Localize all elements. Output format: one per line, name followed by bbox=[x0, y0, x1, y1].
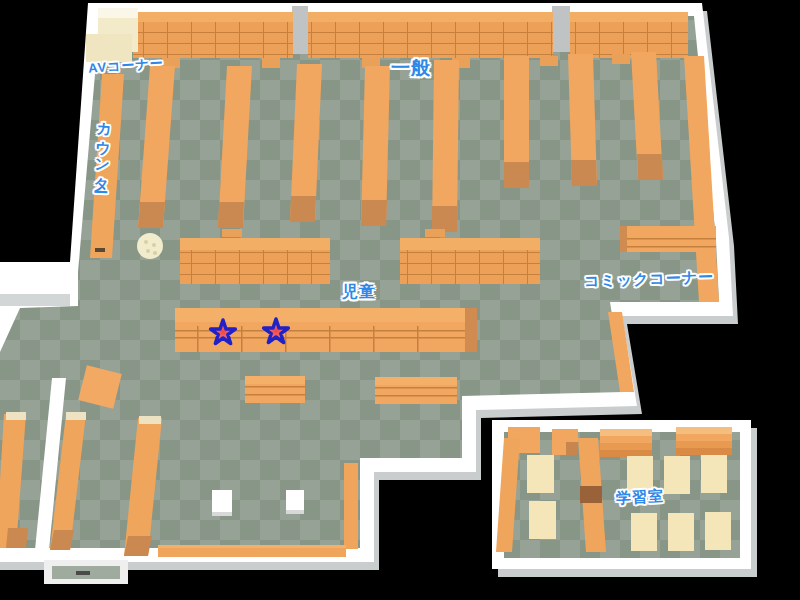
area-label-children: 児童 bbox=[342, 284, 376, 300]
floor-plan-canvas bbox=[0, 0, 800, 600]
entrance-gate[interactable] bbox=[44, 560, 128, 584]
library-floor-map: AVコーナー 一般 カウンター 児童 コミックコーナー 学習室 bbox=[0, 0, 800, 600]
entrance-wall-front bbox=[0, 294, 70, 306]
area-label-comic-corner: コミックコーナー bbox=[584, 269, 715, 289]
area-label-counter: カウンター bbox=[94, 112, 113, 186]
area-label-general: 一般 bbox=[391, 58, 431, 77]
round-table bbox=[137, 233, 163, 259]
area-label-study-room: 学習室 bbox=[616, 488, 665, 505]
